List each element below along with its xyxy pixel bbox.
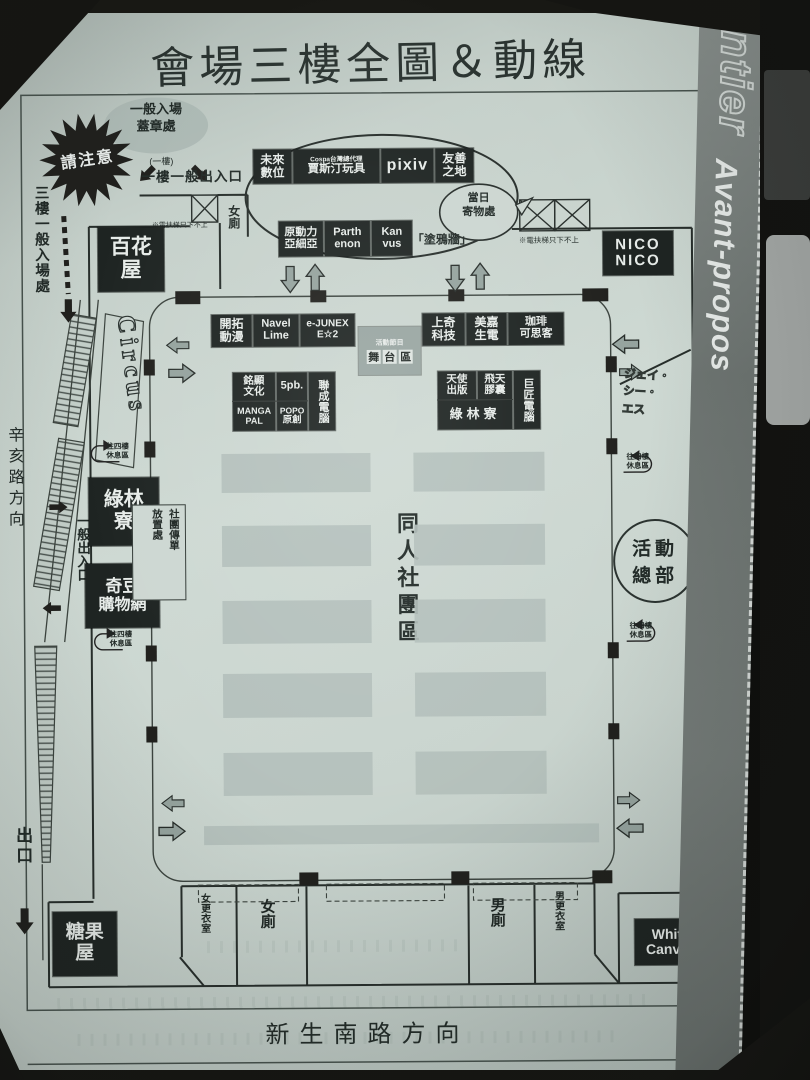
booth-5pb: 5pb. <box>277 372 307 400</box>
label-line: pixiv <box>387 157 429 175</box>
stamp-station-label: 一般入場 蓋章處 <box>104 101 208 136</box>
label-line: Kan <box>381 226 402 238</box>
label-line: vus <box>382 238 401 250</box>
label-line: 原動力 <box>284 227 317 239</box>
label-line: Parth <box>333 227 361 239</box>
booth-baihua: 百花 屋 <box>98 227 164 291</box>
label-line: 總部 <box>632 561 678 588</box>
doujin-table-bar <box>223 752 372 796</box>
booth-mirai-digital: 未來 數位 <box>253 149 291 183</box>
graffiti-wall-label: 「塗鴉牆」 <box>412 230 472 247</box>
label-line: 綠林寮 <box>450 408 501 422</box>
page-title: 會場三樓全圖＆動線 <box>105 22 636 97</box>
label-line: 社團傳單 <box>165 508 182 596</box>
label-line: 一般入場 <box>104 101 208 119</box>
label-line: 寄物處 <box>447 206 511 220</box>
stage-area: 活動節目 舞 台 區 <box>359 327 421 375</box>
booth-gjun: 巨匠電腦 <box>514 371 540 429</box>
stage-tiles: 舞 台 區 <box>367 350 413 364</box>
label-line: E☆2 <box>317 330 338 341</box>
booth-lvlin-hall: 綠林寮 <box>438 400 512 430</box>
label-line: 屋 <box>121 260 142 283</box>
booth-popo: POPO 原創 <box>277 401 307 430</box>
entrance-dotted-path <box>64 216 69 294</box>
booth-liancheng: 聯成電腦 <box>309 372 335 430</box>
doujin-table-bar <box>414 599 545 643</box>
label-line: 舞 <box>367 350 381 364</box>
booth-coffee-kossac: 珈琲 可思客 <box>508 313 563 345</box>
label-line: 休息區 <box>106 451 129 460</box>
booth-jcs: ジェイ・ シー・ エス <box>621 366 680 421</box>
booth-angel-publishing: 天使 出版 <box>438 371 476 399</box>
booth-parthenon: Parth enon <box>325 221 370 256</box>
booth-navel-lime: Navel Lime <box>253 314 298 346</box>
doujin-table-bar-wide <box>204 823 599 845</box>
booth-cospa: Cospa台灣總代理 賈斯汀玩具 <box>293 149 379 184</box>
label-line: 台 <box>383 350 397 364</box>
magazine-page: 會場三樓全圖＆動線 新生南路方向 辛亥路方向 請注意 一般入場 蓋章處 (一樓)… <box>0 0 738 1080</box>
doujin-table-bar <box>415 751 546 795</box>
doujin-table-bar <box>413 452 544 492</box>
label-line: エス <box>621 401 678 422</box>
deposit-label: 當日 寄物處 <box>447 192 511 220</box>
label-line: 動漫 <box>220 331 244 344</box>
label-line: 休息區 <box>110 639 133 648</box>
booth-mangapal: MANGA PAL <box>233 402 275 431</box>
label-line: PAL <box>245 416 262 426</box>
booth-kanvus: Kan vus <box>372 221 412 256</box>
label-line: 可思客 <box>520 329 553 341</box>
label-line: 原創 <box>283 415 302 425</box>
label-line: Lime <box>263 331 289 343</box>
label-line: 生電 <box>475 329 499 342</box>
label-line: 數位 <box>260 167 284 180</box>
label-line: NICO <box>615 237 661 254</box>
label-line: 屋 <box>75 944 94 965</box>
booth-meijia: 美嘉 生電 <box>466 313 506 345</box>
rest-area-label: 往四樓 休息區 <box>106 443 129 460</box>
exit-label: 出口 <box>10 826 35 866</box>
label-line: 5pb. <box>281 380 304 392</box>
label-line: 當日 <box>447 192 511 206</box>
flyer-stand-box: 社團傳單 放置處 <box>132 504 187 600</box>
rest-area-label: 往四樓 休息區 <box>110 631 133 648</box>
booth-niconico: NICO NICO <box>603 231 673 275</box>
label-line: 文化 <box>243 387 264 398</box>
booth-candy-house: 糖果 屋 <box>53 912 117 976</box>
label-line: 區 <box>399 350 413 364</box>
label-line: 百花 <box>110 237 152 260</box>
doujin-table-bar <box>222 600 371 644</box>
label-line: 放置處 <box>148 508 165 596</box>
label-line: 出版 <box>446 385 467 396</box>
room-toilet-m-label: 男廁 <box>486 897 507 927</box>
photographed-floor-map-page: 會場三樓全圖＆動線 新生南路方向 辛亥路方向 請注意 一般入場 蓋章處 (一樓)… <box>0 0 810 1080</box>
toilet-f-top-label: 女廁 <box>226 205 243 229</box>
rest-area-label: 往四樓 休息區 <box>626 453 649 470</box>
pillars <box>143 288 620 886</box>
label-line: 賈斯汀玩具 <box>308 163 366 176</box>
booth-sunteq: 上奇 科技 <box>422 313 464 345</box>
doujin-table-bar <box>223 673 372 718</box>
label-line: 休息區 <box>626 462 649 471</box>
doujin-table-bar <box>414 524 545 566</box>
label-line: NICO <box>615 253 661 270</box>
room-toilet-f-label: 女廁 <box>257 899 278 929</box>
label-line: enon <box>334 239 360 251</box>
label-line: 科技 <box>432 329 456 342</box>
booth-kaituo: 開拓 動漫 <box>211 315 251 347</box>
photo-background-bottom <box>0 1070 810 1080</box>
background-object-panel <box>764 70 810 200</box>
label-line: 活動 <box>632 534 678 561</box>
booth-pixiv: pixiv <box>381 149 433 183</box>
event-hq-circle: 活動 總部 <box>613 519 698 604</box>
background-object-device <box>766 235 810 425</box>
booth-gendouli-asia: 原動力 亞細亞 <box>279 221 323 256</box>
booth-feitian: 飛天 膠囊 <box>478 371 512 399</box>
label-line: 蓋章處 <box>104 118 208 136</box>
booth-mingxian: 銘顯 文化 <box>233 373 275 401</box>
road-label-xinhai: 辛亥路方向 <box>1 426 26 531</box>
booth-ejunex: e-JUNEX E☆2 <box>300 314 354 346</box>
label-line: 亞細亞 <box>284 239 317 251</box>
magazine-section: Avant-propos <box>703 158 744 372</box>
label-line: 之地 <box>442 165 466 178</box>
escalator-note-right: ※電扶梯只下不上 <box>519 234 579 245</box>
booth-friendly-land: 友善 之地 <box>435 148 473 182</box>
room-change-f-label: 女更衣室 <box>196 893 211 933</box>
stage-caption: 活動節目 <box>376 338 404 348</box>
label-line: 休息區 <box>630 631 653 640</box>
print-bleed <box>207 939 467 953</box>
rest-area-label: 往四樓 休息區 <box>630 622 653 639</box>
label-line: 糖果 <box>66 923 104 944</box>
doujin-table-bar <box>221 453 370 493</box>
room-change-m-label: 男更衣室 <box>550 891 565 931</box>
entrance-3f-label: 三樓一般入場處 <box>31 185 53 294</box>
label-line: 膠囊 <box>484 385 505 396</box>
doujin-table-bar <box>222 525 371 567</box>
doujin-table-bar <box>415 672 546 717</box>
